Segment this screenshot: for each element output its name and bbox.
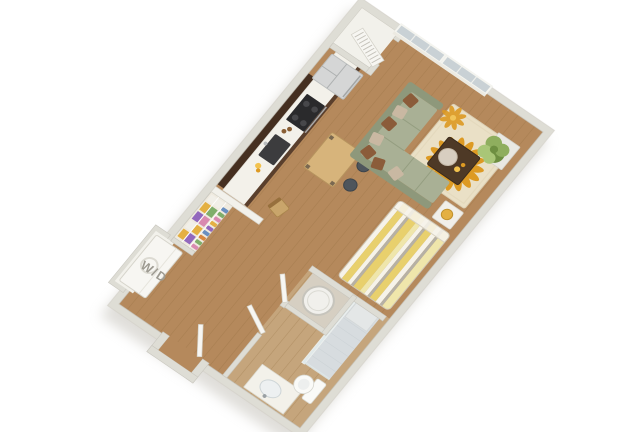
entry-door [197, 324, 203, 356]
floor-plan-render: W/D [0, 0, 640, 432]
apartment-unit [86, 0, 555, 432]
floorplan-image: W/D [0, 0, 640, 432]
